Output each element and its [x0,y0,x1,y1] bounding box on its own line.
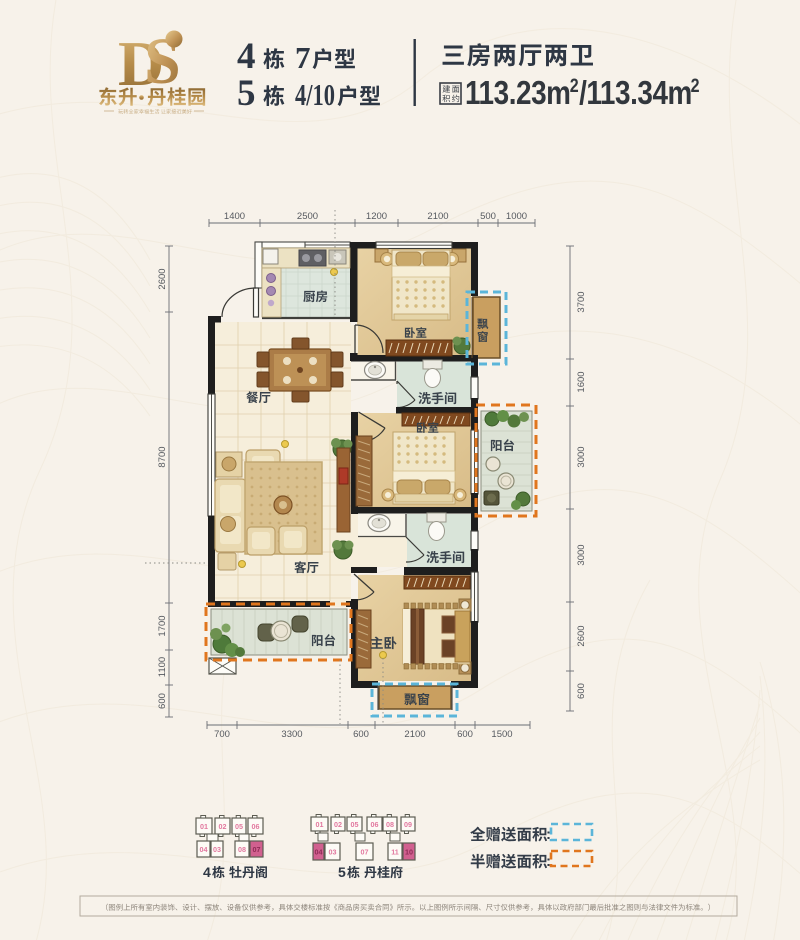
svg-text:03: 03 [329,848,337,857]
svg-text:02: 02 [219,822,227,831]
svg-text:5: 5 [237,73,256,114]
svg-text:8700: 8700 [157,446,168,467]
svg-text:3000: 3000 [576,544,587,565]
svg-text:01: 01 [316,820,324,829]
svg-text:600: 600 [457,729,473,740]
svg-text:1500: 1500 [491,729,512,740]
svg-text:02: 02 [334,820,342,829]
svg-text:600: 600 [576,683,587,699]
svg-text:10: 10 [405,848,413,857]
svg-text:04: 04 [315,848,323,857]
svg-text:2600: 2600 [576,625,587,646]
svg-text:05: 05 [235,822,243,831]
svg-text:4: 4 [203,864,211,880]
svg-text:500: 500 [480,211,496,222]
svg-text:1000: 1000 [506,211,527,222]
svg-text:07: 07 [361,848,369,857]
svg-text:04: 04 [200,845,208,854]
svg-text:2: 2 [691,75,700,97]
svg-text:2600: 2600 [157,268,168,289]
svg-text:1100: 1100 [157,657,168,677]
svg-text:3300: 3300 [281,729,302,740]
svg-text:1400: 1400 [224,211,245,222]
svg-text:600: 600 [353,729,369,740]
svg-text:07: 07 [253,845,261,854]
svg-text:01: 01 [200,822,208,831]
svg-text:4/10: 4/10 [295,77,335,112]
svg-text:2500: 2500 [297,211,318,222]
svg-text:06: 06 [371,820,379,829]
svg-text:113.23m: 113.23m [465,75,571,112]
svg-text:2100: 2100 [427,211,448,222]
svg-text:1700: 1700 [157,615,168,636]
svg-text:7: 7 [295,40,311,75]
svg-text:09: 09 [404,820,412,829]
svg-text:700: 700 [214,729,230,740]
svg-text:1200: 1200 [366,211,387,222]
svg-text:08: 08 [238,845,246,854]
svg-text:06: 06 [252,822,260,831]
svg-text:3700: 3700 [576,291,587,312]
svg-text:3000: 3000 [576,446,587,467]
svg-text:03: 03 [213,845,221,854]
svg-text:08: 08 [386,820,394,829]
svg-text:1600: 1600 [576,371,587,392]
svg-text:2: 2 [570,75,579,97]
svg-text:11: 11 [391,848,399,857]
svg-text:05: 05 [351,820,359,829]
svg-text:5: 5 [338,864,346,880]
svg-text:2100: 2100 [404,729,425,740]
svg-text:4: 4 [237,36,256,77]
svg-text:/113.34m: /113.34m [579,75,692,112]
svg-text:600: 600 [157,693,168,709]
